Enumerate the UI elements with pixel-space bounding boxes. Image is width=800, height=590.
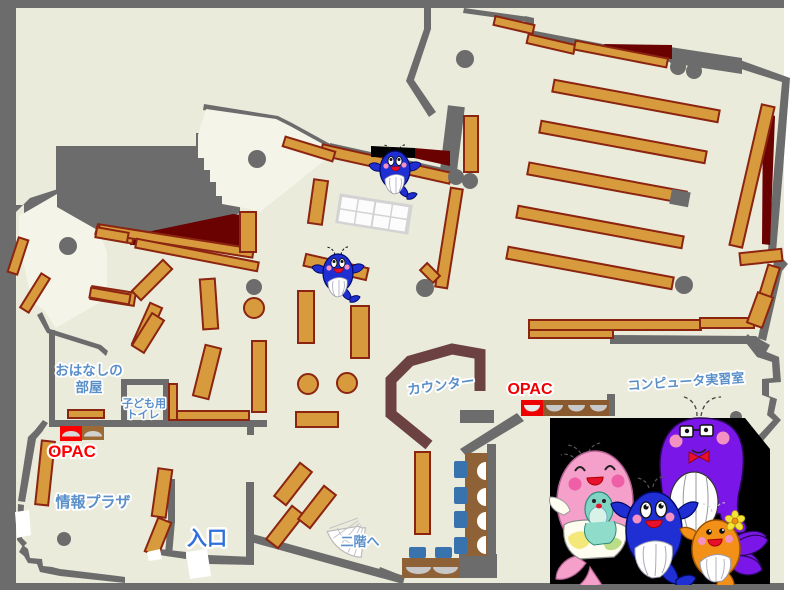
svg-text:OPAC: OPAC xyxy=(507,381,552,398)
svg-text:OPAC: OPAC xyxy=(48,442,96,461)
svg-text:トイレ: トイレ xyxy=(127,408,160,421)
svg-text:おはなしの: おはなしの xyxy=(55,363,123,378)
svg-text:入口: 入口 xyxy=(187,527,227,550)
svg-text:部屋: 部屋 xyxy=(76,379,103,395)
svg-text:情報プラザ: 情報プラザ xyxy=(55,493,130,511)
svg-text:二階へ: 二階へ xyxy=(340,534,379,549)
